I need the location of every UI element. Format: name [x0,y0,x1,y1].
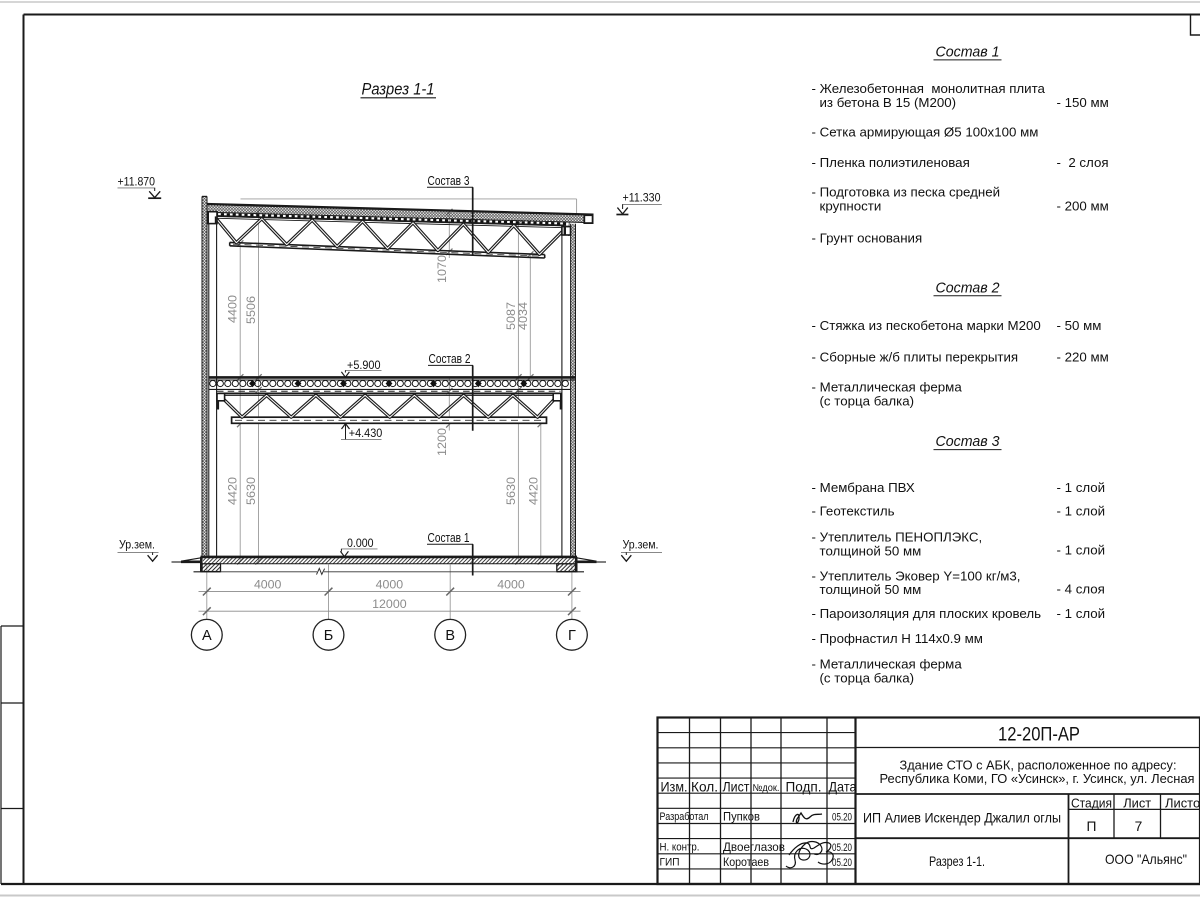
svg-text:- 1 слой: - 1 слой [1057,606,1106,621]
svg-text:1070: 1070 [435,255,449,283]
svg-text:- 1 слой: - 1 слой [1057,504,1106,519]
svg-text:05.20: 05.20 [832,857,852,869]
svg-text:Состав 1: Состав 1 [428,530,470,545]
svg-text:Лист: Лист [1123,795,1151,810]
svg-text:Стадия: Стадия [1071,795,1112,810]
svg-text:Пупков: Пупков [723,810,760,824]
svg-text:- Мембрана ПВХ: - Мембрана ПВХ [812,480,915,495]
svg-text:- Железобетонная монолитная п: - Железобетонная монолитная плита [812,81,1046,96]
svg-text:4420: 4420 [526,477,540,505]
svg-text:Кол.: Кол. [691,780,718,795]
svg-text:4000: 4000 [376,577,404,591]
svg-text:ИП Алиев Искендер Джалил оглы: ИП Алиев Искендер Джалил оглы [863,809,1061,825]
svg-text:Состав 2: Состав 2 [936,280,1000,296]
svg-text:7: 7 [1135,819,1143,834]
svg-text:4000: 4000 [497,577,525,591]
svg-text:- Сборные ж/б плиты перекрытия: - Сборные ж/б плиты перекрытия [812,350,1019,365]
svg-text:5630: 5630 [504,477,518,505]
svg-text:5630: 5630 [244,477,258,505]
svg-text:В: В [445,628,455,644]
svg-text:- 220 мм: - 220 мм [1057,350,1109,365]
svg-text:5506: 5506 [244,296,258,324]
svg-text:(с торца балка): (с торца балка) [820,393,915,408]
svg-text:- Стяжка из пескобетона марки: - Стяжка из пескобетона марки М200 [812,318,1041,333]
svg-text:- 50 мм: - 50 мм [1057,318,1102,333]
svg-text:- Пароизоляция для плоских кро: - Пароизоляция для плоских кровель [812,606,1042,621]
svg-text:Состав 1: Состав 1 [936,45,1000,61]
svg-text:Подп.: Подп. [786,780,822,795]
svg-text:Г: Г [568,628,576,644]
svg-text:А: А [202,628,212,644]
svg-text:12-20П-АР: 12-20П-АР [998,723,1080,745]
svg-text:Здание СТО с АБК, расположенно: Здание СТО с АБК, расположенное по адрес… [900,757,1177,772]
svg-text:Коротаев: Коротаев [723,855,769,869]
svg-text:крупности: крупности [820,199,882,214]
svg-text:Состав 3: Состав 3 [936,434,1000,450]
svg-text:4000: 4000 [254,577,282,591]
svg-text:12000: 12000 [372,597,407,611]
svg-text:П: П [1087,819,1097,834]
svg-text:- 4 слоя: - 4 слоя [1057,581,1105,596]
svg-text:- Грунт основания: - Грунт основания [812,231,923,246]
svg-text:0.000: 0.000 [347,536,374,550]
svg-text:Дата: Дата [829,780,857,795]
svg-text:4034: 4034 [516,302,530,330]
svg-text:+11.870: +11.870 [118,175,156,189]
svg-text:Состав 2: Состав 2 [429,351,471,366]
svg-text:толщиной 50 мм: толщиной 50 мм [820,582,922,597]
svg-text:1200: 1200 [435,428,449,456]
svg-text:- 1 слой: - 1 слой [1057,543,1106,558]
svg-text:Разрез 1-1: Разрез 1-1 [362,81,435,99]
svg-text:(с торца балка): (с торца балка) [820,670,915,685]
svg-text:- 1 слой: - 1 слой [1057,480,1106,495]
svg-text:- Металлическая ферма: - Металлическая ферма [812,657,963,672]
svg-text:- Сетка армирующая Ø5 100х100: - Сетка армирующая Ø5 100х100 мм [812,125,1039,140]
svg-text:ГИП: ГИП [660,857,680,869]
svg-text:05.20: 05.20 [832,842,852,854]
svg-text:05.20: 05.20 [832,812,852,824]
svg-text:- 200 мм: - 200 мм [1057,199,1109,214]
svg-text:4400: 4400 [226,295,240,323]
svg-text:- Утеплитель ПЕНОПЛЭКС,: - Утеплитель ПЕНОПЛЭКС, [812,529,983,544]
svg-text:- Металлическая ферма: - Металлическая ферма [812,380,963,395]
svg-text:Листов: Листов [1165,795,1200,810]
svg-text:Состав 3: Состав 3 [428,173,470,188]
svg-text:Н. контр.: Н. контр. [660,842,700,854]
svg-text:Б: Б [324,628,334,644]
svg-text:- Геотекстиль: - Геотекстиль [812,504,895,519]
svg-text:Лист: Лист [723,780,750,795]
svg-text:Ур.зем.: Ур.зем. [119,538,155,552]
svg-text:4420: 4420 [226,477,240,505]
svg-text:Республика Коми, ГО «Усинск»,: Республика Коми, ГО «Усинск», г. Усинск,… [880,771,1195,786]
svg-text:Разработал: Разработал [660,811,709,823]
svg-text:Двоеглазов: Двоеглазов [723,840,785,854]
svg-text:- Утеплитель Эковер Y=100 кг/м: - Утеплитель Эковер Y=100 кг/м3, [812,568,1021,583]
svg-text:№док.: №док. [753,783,780,794]
svg-text:- Профнастил Н 114х0.9 мм: - Профнастил Н 114х0.9 мм [812,631,983,646]
svg-text:+11.330: +11.330 [623,191,661,205]
svg-text:толщиной 50 мм: толщиной 50 мм [820,543,922,558]
svg-text:- 150 мм: - 150 мм [1057,95,1109,110]
svg-text:Ур.зем.: Ур.зем. [623,538,659,552]
svg-text:Разрез 1-1.: Разрез 1-1. [929,853,985,869]
svg-text:- Подготовка из песка средней: - Подготовка из песка средней [812,185,1001,200]
svg-text:+4.430: +4.430 [349,426,383,440]
svg-text:- 2 слоя: - 2 слоя [1057,155,1109,170]
svg-text:ООО "Альянс": ООО "Альянс" [1105,851,1187,867]
svg-text:Изм.: Изм. [661,780,688,795]
svg-text:из бетона В 15 (М200): из бетона В 15 (М200) [820,95,957,110]
svg-text:- Пленка полиэтиленовая: - Пленка полиэтиленовая [812,155,970,170]
